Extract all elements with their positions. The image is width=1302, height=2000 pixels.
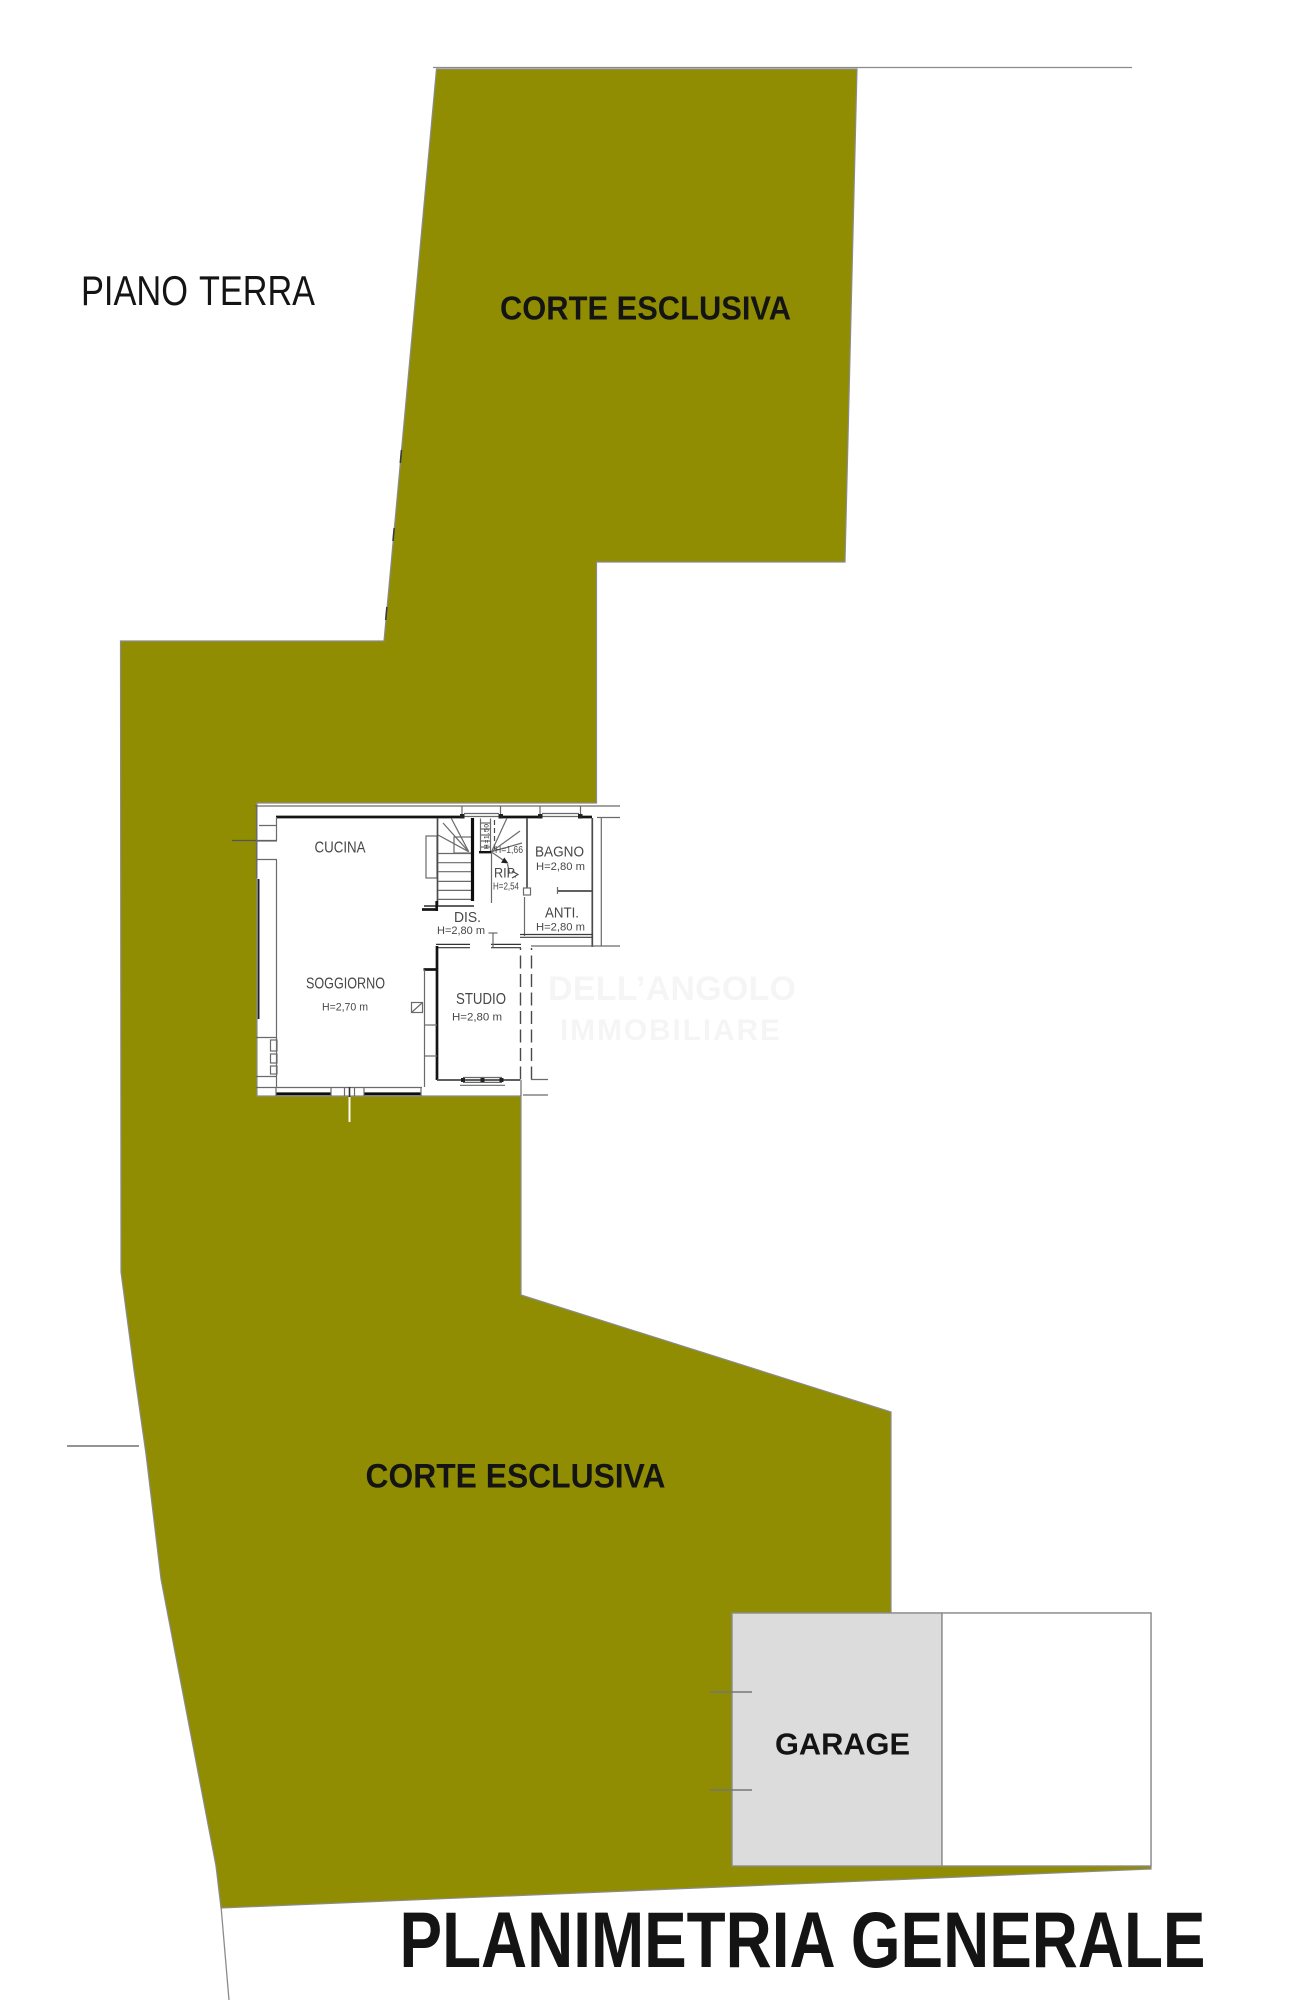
- svg-text:ANTI.: ANTI.: [545, 906, 579, 922]
- svg-text:CORTE ESCLUSIVA: CORTE ESCLUSIVA: [366, 1458, 666, 1496]
- svg-text:RIP.: RIP.: [494, 866, 517, 881]
- svg-text:H=2,80 m: H=2,80 m: [452, 1012, 502, 1024]
- svg-text:H=2,70 m: H=2,70 m: [322, 1002, 368, 1014]
- svg-text:IMMOBILIARE: IMMOBILIARE: [560, 1014, 780, 1047]
- svg-text:H=2,80 m: H=2,80 m: [536, 861, 585, 873]
- svg-text:STUDIO: STUDIO: [456, 991, 506, 1008]
- svg-text:DIS.: DIS.: [454, 909, 481, 926]
- svg-text:H=2,80 m: H=2,80 m: [536, 922, 585, 934]
- svg-text:CUCINA: CUCINA: [315, 840, 367, 857]
- svg-text:BAGNO: BAGNO: [535, 844, 584, 861]
- svg-text:CORTE ESCLUSIVA: CORTE ESCLUSIVA: [500, 291, 791, 328]
- svg-text:H=2,80 m: H=2,80 m: [437, 925, 485, 937]
- svg-text:H=1,66: H=1,66: [495, 845, 523, 856]
- svg-text:SOGGIORNO: SOGGIORNO: [306, 976, 385, 993]
- svg-text:H=1,50: H=1,50: [484, 824, 491, 849]
- svg-text:GARAGE: GARAGE: [775, 1728, 910, 1762]
- svg-text:DELL’ANGOLO: DELL’ANGOLO: [548, 970, 796, 1008]
- svg-text:H=2,54: H=2,54: [493, 882, 519, 893]
- svg-text:PLANIMETRIA GENERALE: PLANIMETRIA GENERALE: [400, 1896, 1206, 1984]
